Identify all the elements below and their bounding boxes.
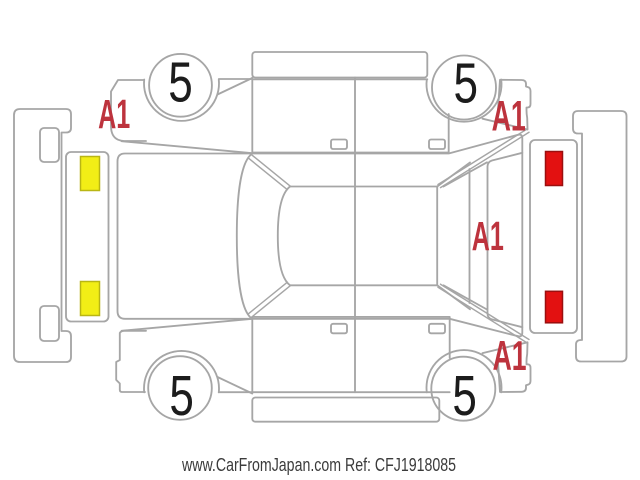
svg-text:5: 5 <box>169 364 194 428</box>
svg-text:A1: A1 <box>472 215 504 259</box>
svg-text:www.CarFromJapan.com Ref: CFJ1: www.CarFromJapan.com Ref: CFJ1918085 <box>181 454 456 475</box>
svg-text:5: 5 <box>454 52 479 116</box>
svg-text:A1: A1 <box>492 92 526 140</box>
svg-text:A1: A1 <box>98 93 130 137</box>
svg-text:5: 5 <box>168 51 193 115</box>
svg-text:5: 5 <box>452 364 477 428</box>
svg-text:A1: A1 <box>493 333 527 379</box>
